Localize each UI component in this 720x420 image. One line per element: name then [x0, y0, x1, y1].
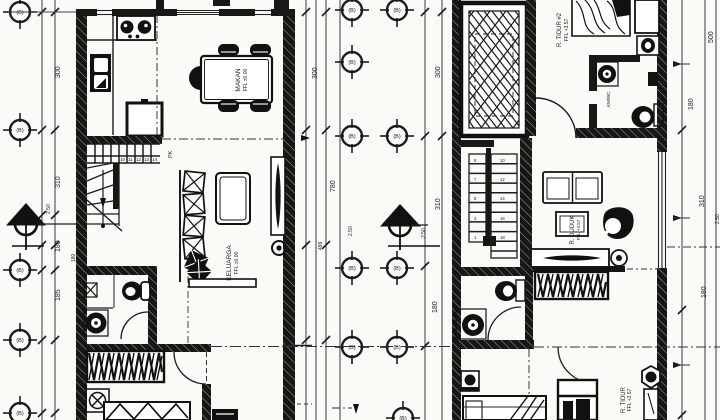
svg-text:FFL +3.57: FFL +3.57 [576, 219, 581, 240]
svg-text:FFL ±0.00: FFL ±0.00 [234, 252, 240, 275]
svg-text:PK: PK [168, 150, 174, 158]
svg-text:300: 300 [435, 66, 442, 78]
svg-text:2.50: 2.50 [715, 214, 720, 224]
svg-text:FFL +3.57: FFL +3.57 [564, 18, 570, 41]
svg-text:10: 10 [500, 158, 505, 163]
svg-text:FFL +3.57: FFL +3.57 [627, 388, 633, 411]
svg-text:180: 180 [71, 253, 77, 262]
svg-text:780: 780 [330, 180, 337, 192]
svg-text:12: 12 [500, 177, 505, 182]
svg-text:300: 300 [312, 67, 319, 79]
svg-text:FFL ±0.00: FFL ±0.00 [243, 69, 249, 92]
svg-text:13: 13 [144, 157, 150, 162]
svg-text:185: 185 [55, 289, 62, 301]
svg-text:310: 310 [699, 195, 706, 207]
svg-text:2.50: 2.50 [348, 226, 354, 236]
svg-text:12: 12 [136, 157, 142, 162]
svg-text:2.50: 2.50 [421, 228, 427, 238]
svg-text:180: 180 [432, 301, 439, 313]
svg-text:18: 18 [500, 235, 505, 240]
svg-text:14: 14 [500, 196, 505, 201]
svg-text:R. TIDUR #2: R. TIDUR #2 [557, 12, 563, 47]
svg-text:310: 310 [435, 198, 442, 210]
svg-text:2.50: 2.50 [46, 204, 52, 214]
svg-text:10: 10 [120, 157, 126, 162]
svg-text:KELUARGA: KELUARGA [226, 245, 233, 281]
svg-text:14: 14 [152, 157, 158, 162]
svg-text:MAKAN: MAKAN [235, 68, 242, 91]
svg-text:11: 11 [128, 157, 133, 162]
svg-text:310: 310 [55, 176, 62, 188]
svg-text:180: 180 [55, 240, 62, 252]
svg-text:180: 180 [688, 98, 695, 110]
svg-text:KM/WC: KM/WC [606, 91, 611, 107]
svg-text:180: 180 [701, 286, 708, 298]
svg-text:16: 16 [500, 216, 505, 221]
svg-text:499: 499 [318, 241, 324, 250]
svg-text:300: 300 [55, 66, 62, 78]
svg-text:500: 500 [708, 31, 715, 43]
